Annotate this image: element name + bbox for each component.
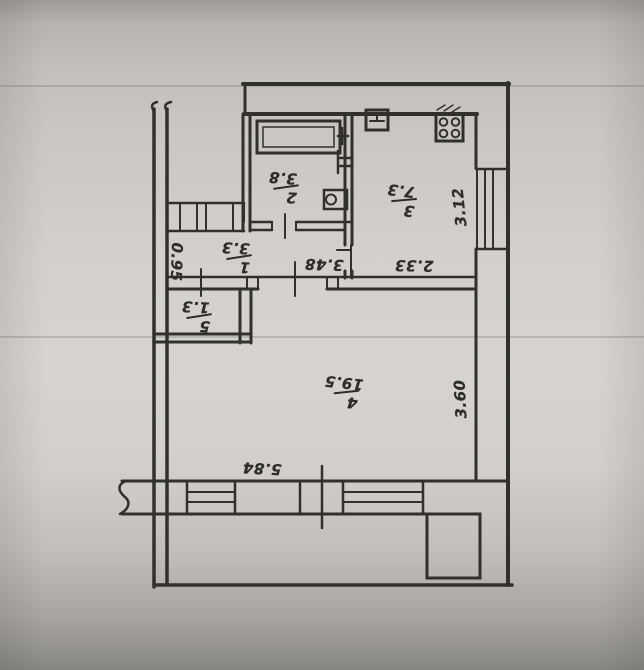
dim-hall-length: 3.48 [304,256,344,272]
dim-kitchen-width: 2.33 [394,257,433,273]
kitchen-window [476,169,507,249]
room-2-area: 3.8 [268,169,297,186]
plan-drawing [0,0,644,670]
room-1-area: 3.3 [221,239,250,255]
room-2-label: 2 3.8 [267,169,305,206]
room-4-number: 4 [346,394,358,410]
room-4-label: 4 19.5 [322,373,372,412]
dim-hall-width: 0.95 [168,242,184,282]
floor-plan: 1 3.3 2 3.8 3 7.3 4 19.5 5 1.3 0.95 3.48… [0,0,644,670]
dim-room4-width: 5.84 [242,459,282,476]
room-3-label: 3 7.3 [384,181,424,219]
room-5-label: 5 1.3 [180,298,218,334]
room-5-number: 5 [199,318,211,334]
room-2-number: 2 [285,189,297,205]
stove-icon [436,105,463,141]
room-5-area: 1.3 [181,298,210,314]
dim-kitchen-depth: 3.12 [451,187,470,227]
dim-room4-depth: 3.60 [452,379,469,419]
room-1-number: 1 [239,259,251,275]
room-3-number: 3 [402,202,415,218]
room-4-area: 19.5 [324,373,364,392]
bathtub-icon [257,121,348,153]
balcony [427,514,480,578]
room-3-area: 7.3 [386,181,416,199]
room-1-label: 1 3.3 [220,239,258,275]
entry-door [167,203,244,231]
